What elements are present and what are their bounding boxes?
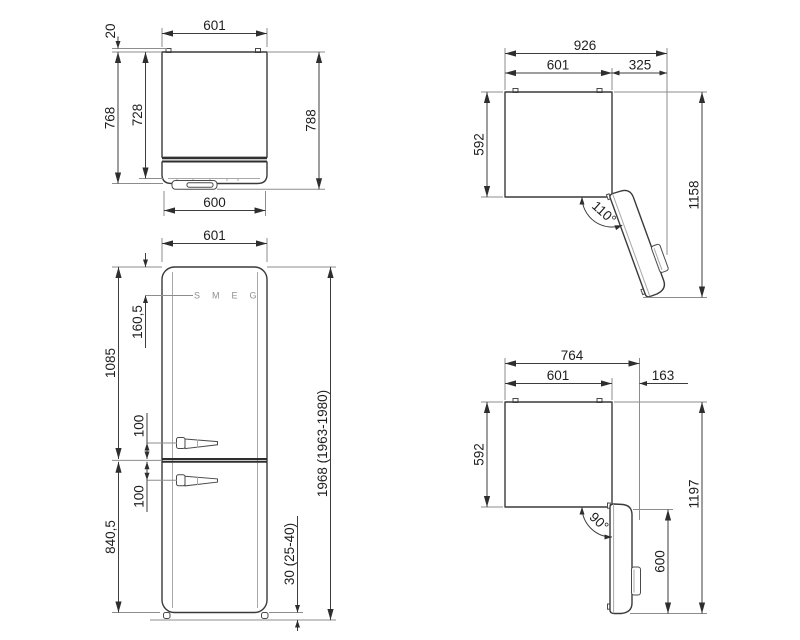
view-open-110: 110° 926 601 325 592 1158: [472, 38, 708, 299]
foot-left: [164, 613, 171, 619]
dim-label-plan-depth-with-handle: 788: [304, 109, 319, 132]
technical-drawing-page: 601 20 768 728 788 600 SMEG: [0, 0, 800, 640]
dim-90-total-depth: 1197: [687, 402, 703, 614]
dim-110-total-width: 926: [505, 38, 667, 54]
dim-label-angle-90: 90°: [586, 509, 611, 534]
front-handle-upper: [177, 438, 218, 449]
dim-90-door-length: 600: [653, 510, 669, 614]
dim-plan-depth-body: 728: [130, 52, 146, 179]
dim-90-door-swing: 163: [640, 368, 689, 384]
dim-label-front-lower-section: 840,5: [103, 520, 118, 554]
dim-label-front-width: 601: [203, 228, 226, 243]
dim-label-90-door-length: 600: [653, 550, 668, 573]
front-handle-lower: [177, 475, 218, 486]
dim-label-front-total-height: 1968 (1963-1980): [315, 390, 330, 497]
refrigerator-dimension-drawing: 601 20 768 728 788 600 SMEG: [0, 0, 800, 640]
dim-label-110-body-width: 601: [547, 58, 570, 73]
dim-90-depth: 592: [472, 402, 488, 507]
dim-plan-width-top: 601: [162, 18, 267, 34]
cabinet-body-plan: [162, 52, 267, 157]
handle-plan-inner: [187, 183, 213, 188]
cabinet-body-90: [505, 402, 612, 507]
dim-label-front-handle-lower: 100: [132, 485, 147, 508]
dim-110-depth: 592: [472, 92, 488, 197]
dim-110-total-depth: 1158: [687, 92, 703, 298]
dim-label-110-door-swing: 325: [629, 58, 652, 73]
dim-front-width: 601: [162, 228, 267, 244]
door-open-90: [608, 503, 641, 614]
door-open-110: [606, 183, 675, 298]
dim-front-lower-section: 840,5: [103, 462, 119, 613]
view-plan-closed: 601 20 768 728 788 600: [103, 18, 326, 216]
dim-label-front-upper-section: 1085: [103, 348, 118, 378]
dim-front-total-height: 1968 (1963-1980): [315, 267, 331, 620]
dim-label-110-depth: 592: [472, 133, 487, 156]
dim-plan-depth-with-handle: 788: [304, 52, 320, 189]
dim-label-plan-width-top: 601: [203, 18, 226, 33]
dim-label-front-logo-offset: 160,5: [130, 305, 145, 339]
dim-label-110-total-width: 926: [574, 38, 597, 53]
smeg-logo: SMEG: [194, 291, 269, 301]
dim-label-90-body-width: 601: [547, 368, 570, 383]
view-90-extension-lines: [481, 358, 707, 614]
dim-110-body-width: 601: [505, 58, 612, 74]
dim-plan-door-width: 600: [164, 195, 266, 211]
dim-90-total-width: 764: [505, 348, 640, 364]
dim-label-90-total-depth: 1197: [687, 479, 702, 508]
dim-label-90-depth: 592: [472, 443, 487, 466]
dim-plan-depth-with-door: 768: [103, 52, 119, 184]
dim-front-handle-lower: 100: [132, 462, 148, 512]
cabinet-body-110: [505, 92, 612, 197]
dim-plan-rear-spacer: 20: [103, 23, 118, 48]
view-110-extension-lines: [481, 48, 707, 298]
dim-front-handle-upper: 100: [132, 413, 148, 459]
dim-label-front-handle-upper: 100: [132, 415, 147, 438]
dim-front-feet-height: 30 (25-40): [282, 516, 298, 631]
dim-label-90-door-swing: 163: [652, 368, 675, 383]
dim-110-door-swing: 325: [612, 58, 667, 74]
dim-label-110-total-depth: 1158: [687, 180, 702, 209]
foot-right: [262, 613, 269, 619]
dim-label-plan-depth-body: 728: [130, 104, 145, 127]
view-front: SMEG 601: [103, 228, 336, 631]
dim-label-front-feet-height: 30 (25-40): [282, 523, 297, 585]
dim-front-upper-section: 1085: [103, 267, 119, 459]
dim-label-90-total-width: 764: [561, 348, 584, 363]
dim-label-plan-depth-with-door: 768: [103, 107, 118, 130]
view-open-90: 90° 764 601 163 592 600: [472, 348, 708, 614]
dim-label-plan-rear-spacer: 20: [103, 23, 118, 38]
dim-90-body-width: 601: [505, 368, 612, 384]
dim-label-plan-door-width: 600: [203, 195, 226, 210]
